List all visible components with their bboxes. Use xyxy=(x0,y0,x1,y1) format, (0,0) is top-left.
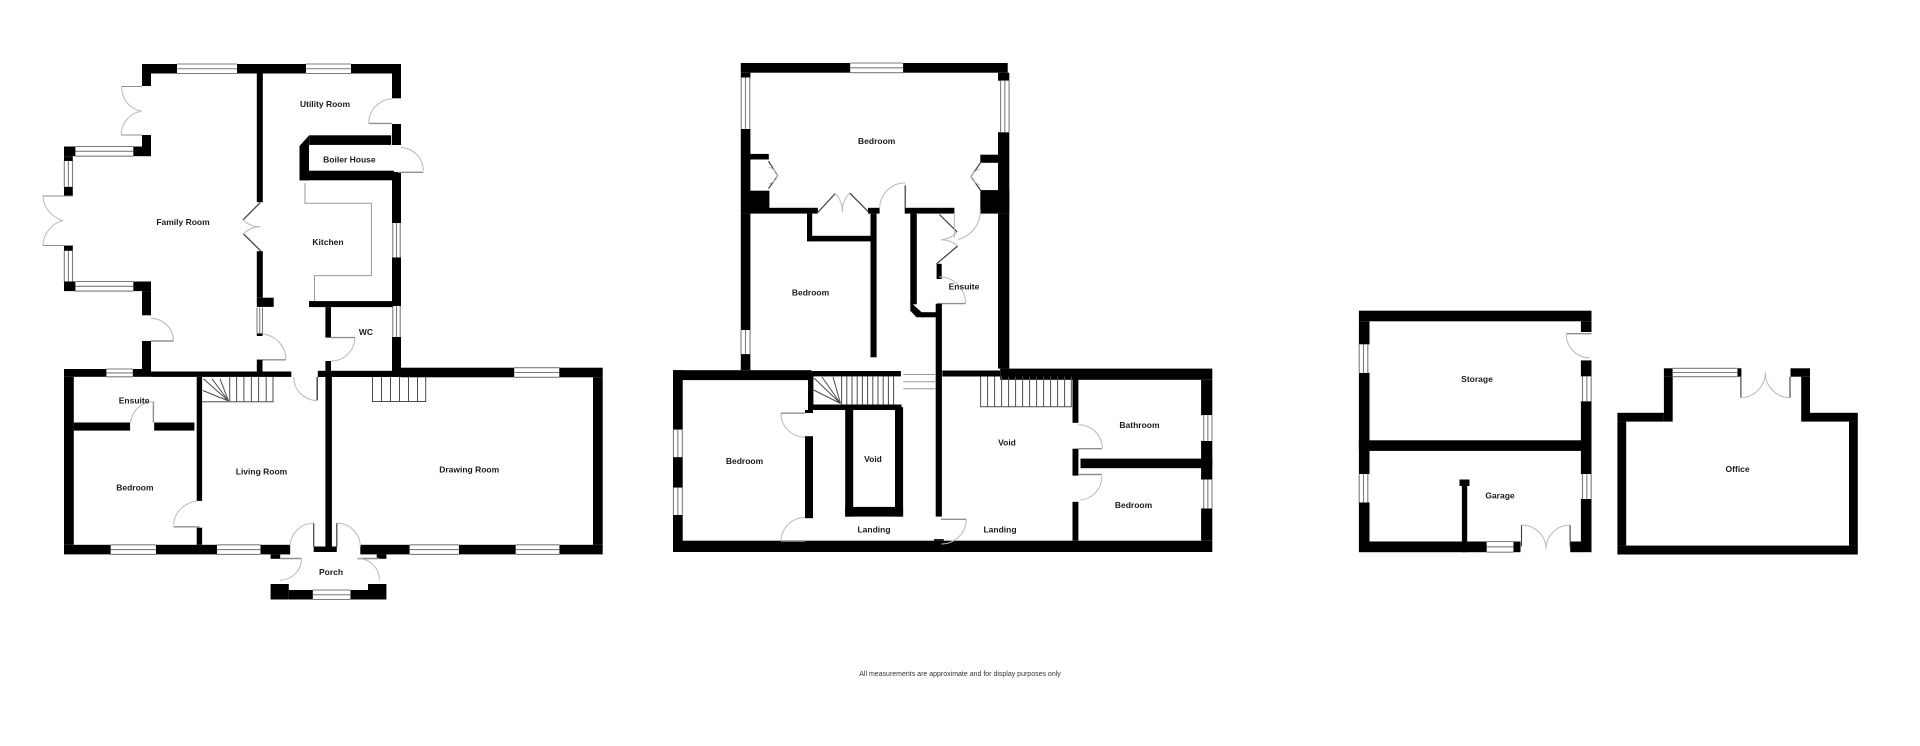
svg-text:Landing: Landing xyxy=(857,525,890,535)
svg-text:Garage: Garage xyxy=(1485,490,1515,500)
svg-text:Utility Room: Utility Room xyxy=(300,99,350,109)
svg-text:WC: WC xyxy=(359,327,373,337)
svg-text:Boiler House: Boiler House xyxy=(323,154,376,164)
svg-text:Ensuite: Ensuite xyxy=(949,282,980,292)
svg-text:Bathroom: Bathroom xyxy=(1119,420,1160,430)
svg-text:Bedroom: Bedroom xyxy=(858,136,896,146)
svg-text:Void: Void xyxy=(864,454,882,464)
svg-text:Void: Void xyxy=(998,438,1016,448)
svg-text:Storage: Storage xyxy=(1461,374,1493,384)
svg-text:Family Room: Family Room xyxy=(156,217,210,227)
svg-text:Bedroom: Bedroom xyxy=(116,483,154,493)
svg-text:Bedroom: Bedroom xyxy=(1115,500,1153,510)
svg-text:Ensuite: Ensuite xyxy=(119,396,150,406)
svg-text:Bedroom: Bedroom xyxy=(792,288,830,298)
svg-text:Kitchen: Kitchen xyxy=(312,237,343,247)
svg-text:Bedroom: Bedroom xyxy=(726,456,764,466)
svg-text:Landing: Landing xyxy=(983,525,1016,535)
svg-text:Office: Office xyxy=(1726,464,1750,474)
svg-text:Living Room: Living Room xyxy=(236,467,288,477)
svg-text:Drawing Room: Drawing Room xyxy=(439,465,499,475)
svg-text:All measurements are approxima: All measurements are approximate and for… xyxy=(859,671,1061,678)
svg-text:Porch: Porch xyxy=(319,567,343,577)
